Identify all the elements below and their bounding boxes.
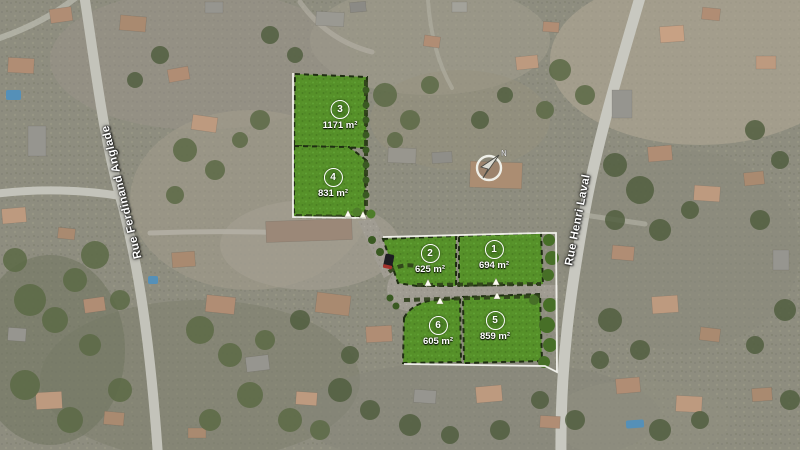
- lot-label-1[interactable]: 1 694 m²: [479, 240, 509, 271]
- conifer-tree: [367, 210, 376, 219]
- lot-label-2[interactable]: 2 625 m²: [415, 244, 445, 275]
- lot-area-text: 1171 m²: [323, 120, 358, 131]
- lot-area-text: 605 m²: [423, 336, 453, 347]
- lot-label-6[interactable]: 6 605 m²: [423, 316, 453, 347]
- lot-label-3[interactable]: 3 1171 m²: [323, 100, 358, 131]
- map-canvas: N Rue Ferdinand Anglade Rue Henri Laval …: [0, 0, 800, 450]
- lot-area-text: 859 m²: [480, 331, 510, 342]
- lot-number-badge: 4: [323, 168, 342, 187]
- conifer-tree: [353, 208, 362, 217]
- subdivision-overlay-layer: [0, 0, 800, 450]
- lot-number-badge: 5: [485, 311, 504, 330]
- lot-number-badge: 2: [420, 244, 439, 263]
- lot-area-text: 694 m²: [479, 260, 509, 271]
- lot-area-text: 831 m²: [318, 188, 348, 199]
- lot-label-4[interactable]: 4 831 m²: [318, 168, 348, 199]
- lot-label-5[interactable]: 5 859 m²: [480, 311, 510, 342]
- lot-number-badge: 3: [331, 100, 350, 119]
- lot-number-badge: 6: [428, 316, 447, 335]
- compass-north-label: N: [501, 149, 507, 158]
- lot-area-text: 625 m²: [415, 264, 445, 275]
- lot-number-badge: 1: [484, 240, 503, 259]
